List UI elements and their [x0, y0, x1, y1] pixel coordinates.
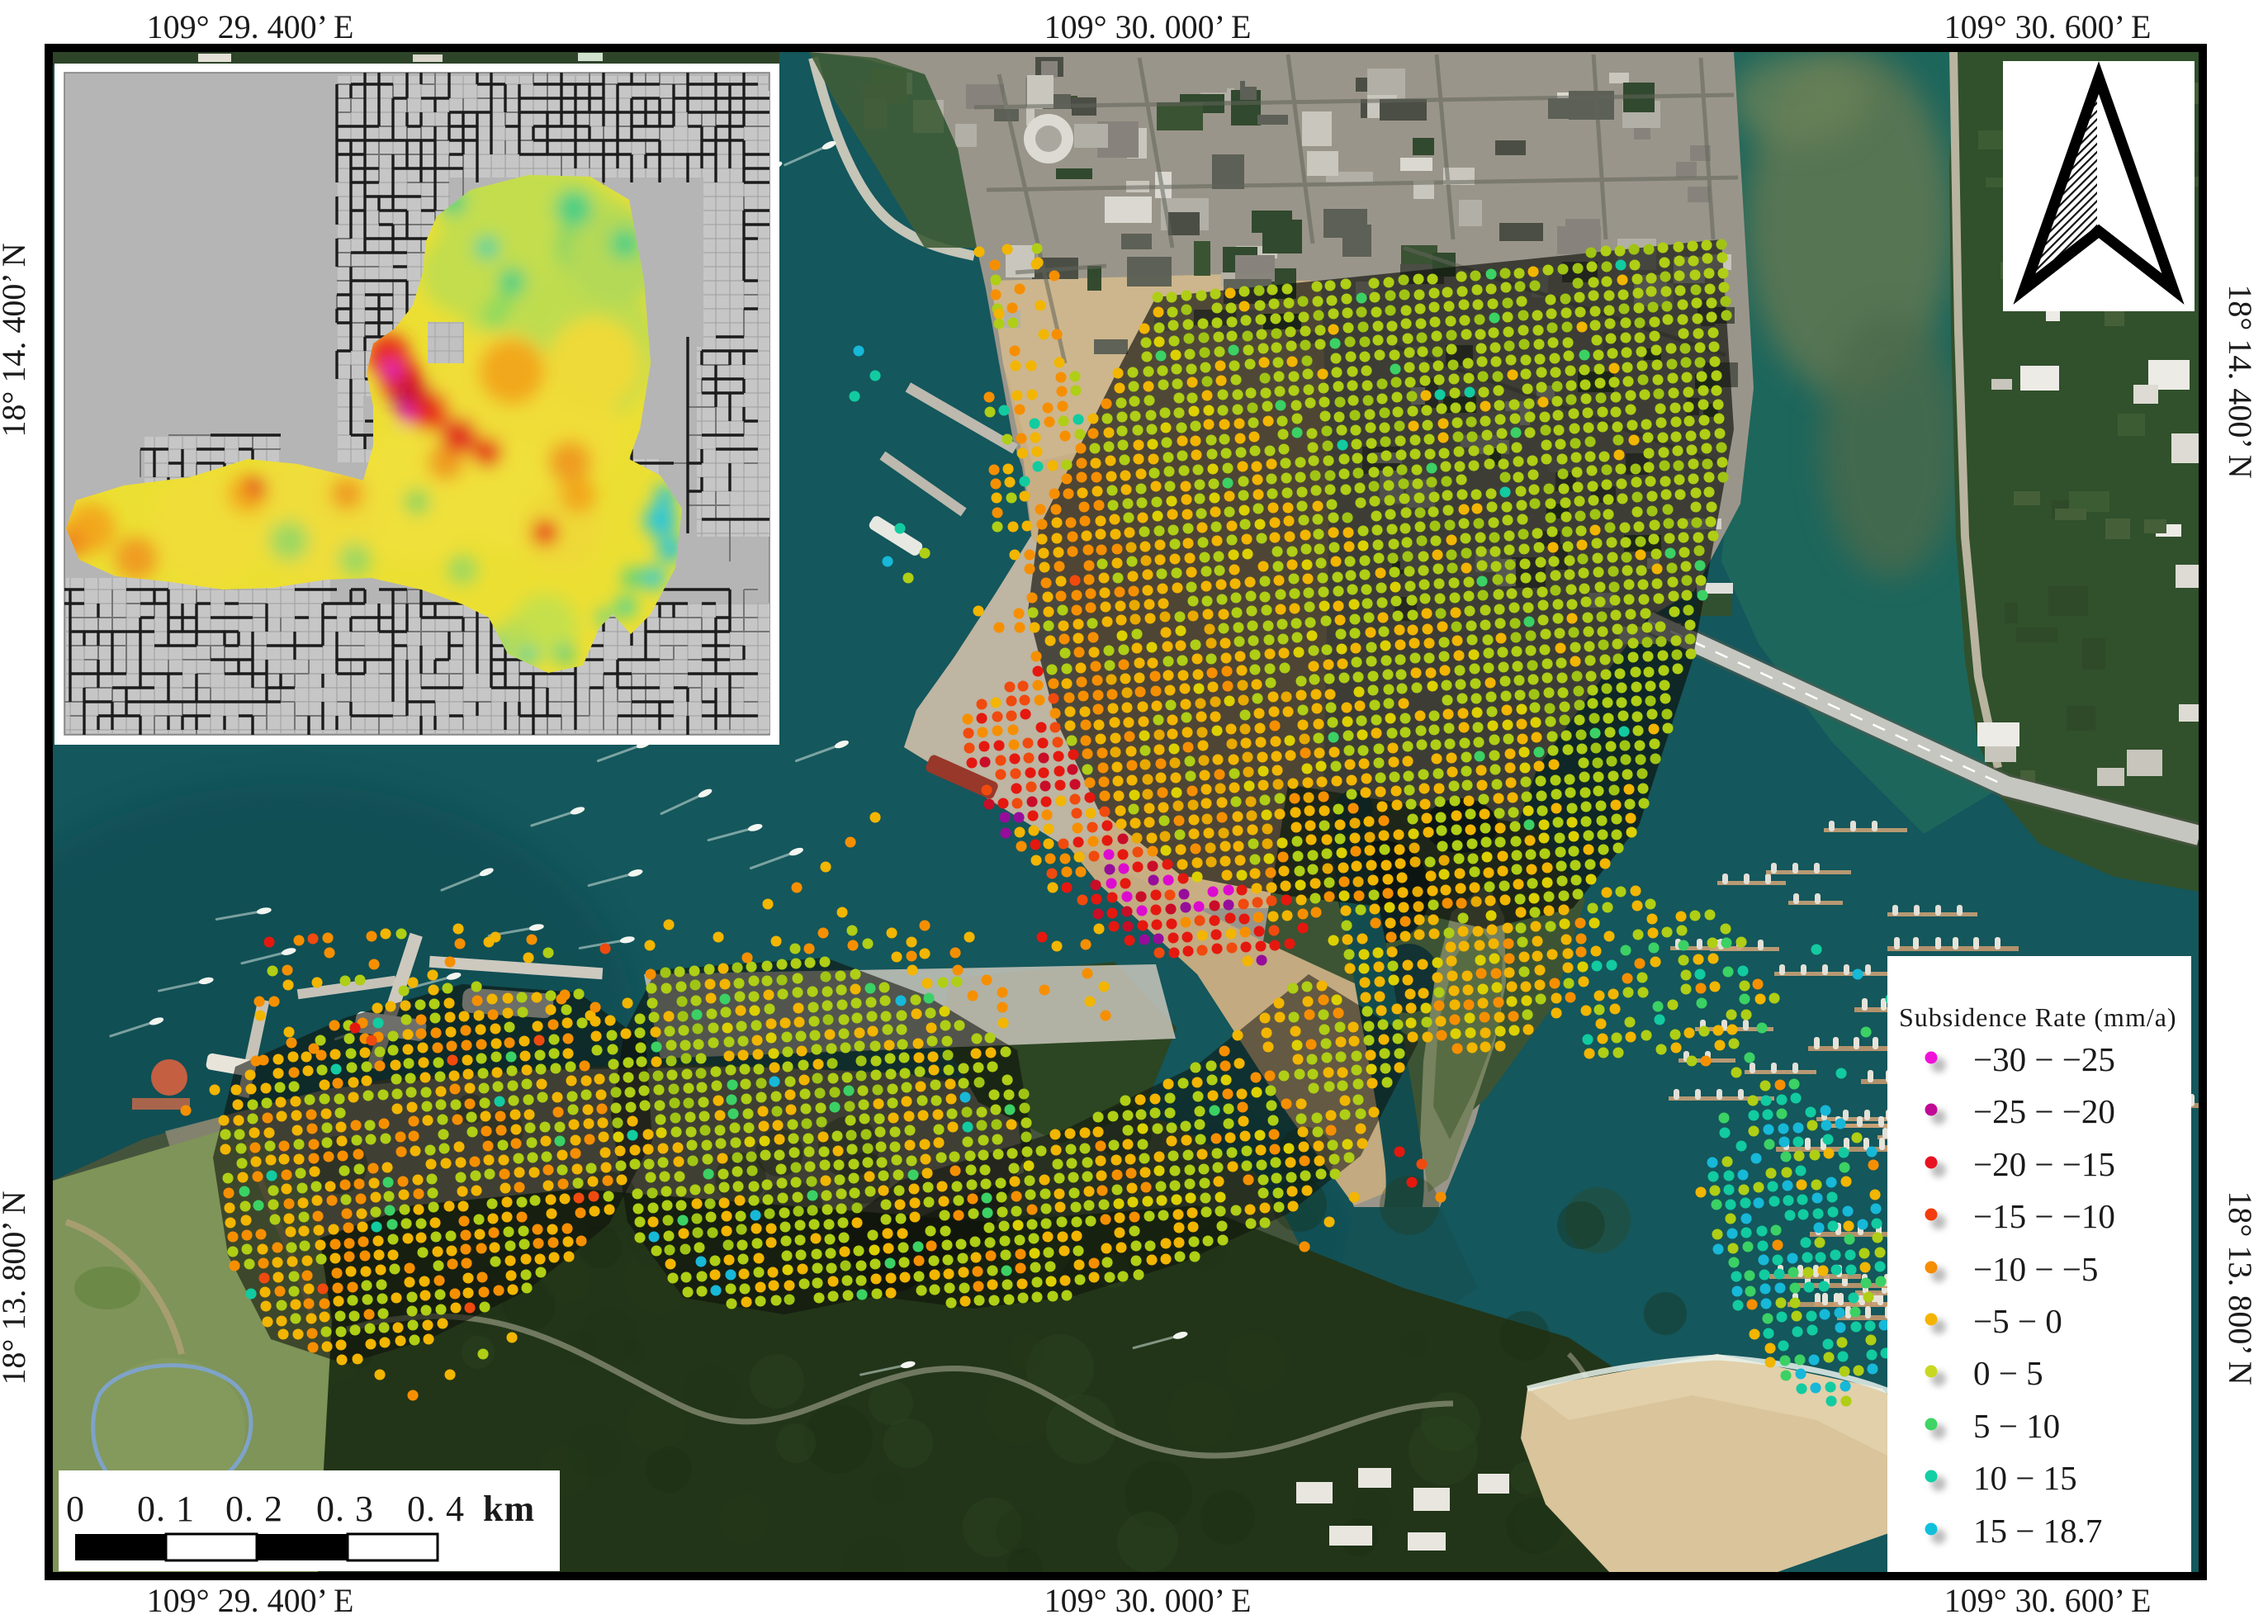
- svg-text:−15 − −10: −15 − −10: [1973, 1197, 2115, 1235]
- svg-text:15 − 18.7: 15 − 18.7: [1973, 1512, 2102, 1550]
- svg-text:km: km: [483, 1489, 535, 1529]
- svg-text:109° 29. 400’ E: 109° 29. 400’ E: [147, 8, 354, 45]
- svg-text:109° 29. 400’ E: 109° 29. 400’ E: [147, 1582, 354, 1619]
- svg-text:109° 30. 600’ E: 109° 30. 600’ E: [1944, 8, 2152, 45]
- svg-text:0. 1: 0. 1: [137, 1489, 195, 1529]
- svg-text:109° 30. 000’ E: 109° 30. 000’ E: [1044, 8, 1252, 45]
- svg-text:18° 13. 800’ N: 18° 13. 800’ N: [2222, 1191, 2259, 1385]
- svg-text:18° 14. 400’ N: 18° 14. 400’ N: [0, 243, 32, 437]
- svg-text:109° 30. 000’ E: 109° 30. 000’ E: [1044, 1582, 1252, 1619]
- svg-text:−30 − −25: −30 − −25: [1973, 1040, 2115, 1078]
- svg-text:18° 13. 800’ N: 18° 13. 800’ N: [0, 1191, 32, 1385]
- svg-text:−25 − −20: −25 − −20: [1973, 1092, 2115, 1130]
- svg-text:−20 − −15: −20 − −15: [1973, 1145, 2115, 1183]
- svg-text:−10 − −5: −10 − −5: [1973, 1250, 2098, 1288]
- svg-text:0. 4: 0. 4: [407, 1489, 465, 1529]
- svg-text:0: 0: [66, 1489, 85, 1529]
- svg-text:−5 − 0: −5 − 0: [1973, 1302, 2062, 1340]
- svg-text:10 − 15: 10 − 15: [1973, 1459, 2077, 1497]
- svg-text:0. 2: 0. 2: [225, 1489, 283, 1529]
- svg-text:18° 14. 400’ N: 18° 14. 400’ N: [2222, 284, 2259, 478]
- svg-text:0 − 5: 0 − 5: [1973, 1354, 2043, 1392]
- svg-text:109° 30. 600’ E: 109° 30. 600’ E: [1944, 1582, 2152, 1619]
- svg-text:0. 3: 0. 3: [316, 1489, 374, 1529]
- svg-text:5 − 10: 5 − 10: [1973, 1407, 2060, 1445]
- svg-text:Subsidence Rate (mm/a): Subsidence Rate (mm/a): [1899, 1002, 2177, 1032]
